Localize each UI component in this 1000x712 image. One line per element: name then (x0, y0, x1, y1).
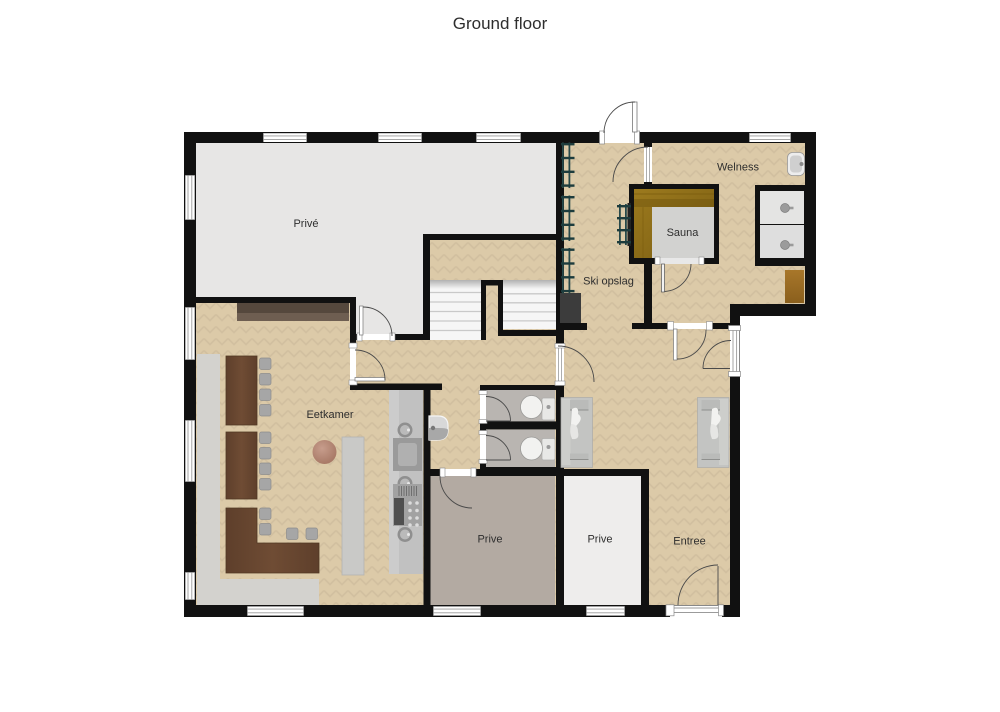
svg-text:Eetkamer: Eetkamer (306, 409, 353, 421)
svg-text:Sauna: Sauna (667, 227, 700, 239)
svg-text:Prive: Prive (477, 534, 502, 546)
svg-text:Privé: Privé (293, 218, 318, 230)
svg-text:Prive: Prive (587, 534, 612, 546)
svg-text:Ground floor: Ground floor (453, 14, 548, 33)
svg-text:Entree: Entree (673, 536, 705, 548)
svg-text:Welness: Welness (717, 162, 759, 174)
svg-text:Ski opslag: Ski opslag (583, 276, 634, 288)
